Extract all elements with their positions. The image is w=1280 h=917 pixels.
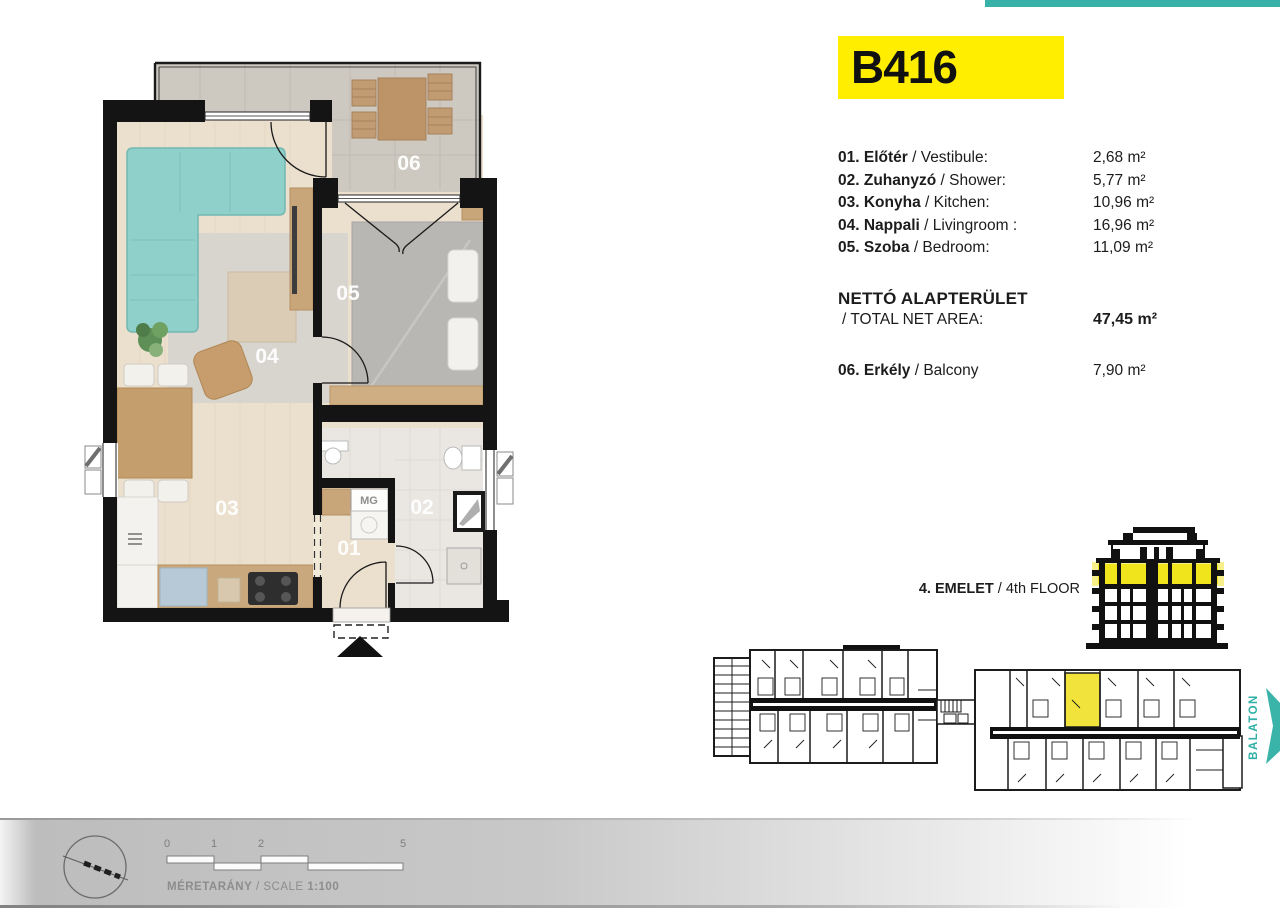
room-area: 7,90 m²	[1093, 362, 1146, 380]
scale-tick: 2	[258, 838, 264, 850]
basin	[325, 448, 341, 464]
label-room-06: 06	[397, 152, 420, 175]
building-elevation	[1080, 520, 1235, 660]
label-washing-machine: MG	[360, 495, 378, 507]
label-room-04: 04	[255, 345, 279, 368]
scale-bar: 0 1 2 5	[155, 832, 420, 880]
room-area: 2,68 m²	[1093, 147, 1146, 170]
total-value: 47,45 m²	[1093, 309, 1157, 330]
sink-cabinet	[117, 497, 158, 567]
scale-tick: 0	[164, 838, 170, 850]
pillow	[448, 250, 478, 302]
pillow	[448, 318, 478, 370]
room-list: 01. Előtér / Vestibule: 2,68 m² 02. Zuha…	[838, 147, 1183, 260]
total-label-en: / TOTAL NET AREA:	[842, 309, 1093, 330]
highlighted-unit	[1065, 673, 1100, 727]
hall-cabinet	[322, 489, 351, 515]
bathroom-window-niche	[455, 493, 483, 530]
tv	[292, 206, 297, 294]
kitchen-sink	[218, 578, 240, 602]
top-accent-bar	[985, 0, 1280, 7]
unit-id: B416	[838, 36, 1064, 99]
entry-dashed	[334, 625, 388, 638]
scale-label: MÉRETARÁNY / SCALE 1:100	[167, 881, 339, 893]
room-area: 5,77 m²	[1093, 170, 1146, 193]
shower-tray	[447, 548, 481, 584]
label-room-02: 02	[410, 496, 433, 519]
room-area: 11,09 m²	[1093, 237, 1153, 260]
toilet	[444, 447, 462, 469]
floorplan-sheet: 06 05 04 03 01 02 MG B416 01. Előtér / V…	[0, 0, 1280, 917]
room-row: 05. Szoba / Bedroom: 11,09 m²	[838, 237, 1183, 260]
room-row: 01. Előtér / Vestibule: 2,68 m²	[838, 147, 1183, 170]
site-keyplan: BALATON	[700, 640, 1280, 805]
total-label-hu: NETTÓ ALAPTERÜLET	[838, 288, 1183, 309]
apartment-floorplan: 06 05 04 03 01 02 MG	[60, 55, 530, 665]
direction-arrow-icon	[1266, 688, 1280, 764]
right-wing	[975, 670, 1242, 790]
wardrobe	[330, 386, 483, 405]
scale-tick: 1	[211, 838, 217, 850]
core-connector	[937, 700, 975, 724]
entry-arrow	[337, 636, 383, 657]
dishwasher	[160, 568, 207, 606]
label-room-01: 01	[337, 537, 361, 560]
scale-tick: 5	[400, 838, 406, 850]
room-row: 02. Zuhanyzó / Shower: 5,77 m²	[838, 170, 1183, 193]
label-room-03: 03	[215, 497, 238, 520]
north-compass-icon	[55, 828, 145, 908]
label-room-05: 05	[336, 282, 360, 305]
coffee-table	[228, 272, 296, 342]
room-area: 16,96 m²	[1093, 215, 1154, 238]
room-area: 10,96 m²	[1093, 192, 1154, 215]
window-left	[85, 443, 118, 497]
entry-threshold	[333, 608, 390, 622]
left-wing	[714, 650, 937, 763]
floor-indicator: 4. EMELET / 4th FLOOR	[878, 581, 1080, 597]
window-right	[483, 450, 513, 530]
total-net-area: NETTÓ ALAPTERÜLET / TOTAL NET AREA: 47,4…	[838, 288, 1183, 330]
dining-table	[117, 388, 192, 478]
direction-label: BALATON	[1248, 694, 1260, 760]
toilet-tank	[462, 446, 481, 470]
cooktop	[248, 572, 298, 605]
fridge	[117, 565, 158, 608]
room-row: 04. Nappali / Livingroom : 16,96 m²	[838, 215, 1183, 238]
room-row: 03. Konyha / Kitchen: 10,96 m²	[838, 192, 1183, 215]
balcony-row: 06. Erkély / Balcony 7,90 m²	[838, 362, 1183, 380]
unit-id-card: B416	[838, 36, 1064, 99]
balcony-table	[378, 78, 426, 140]
